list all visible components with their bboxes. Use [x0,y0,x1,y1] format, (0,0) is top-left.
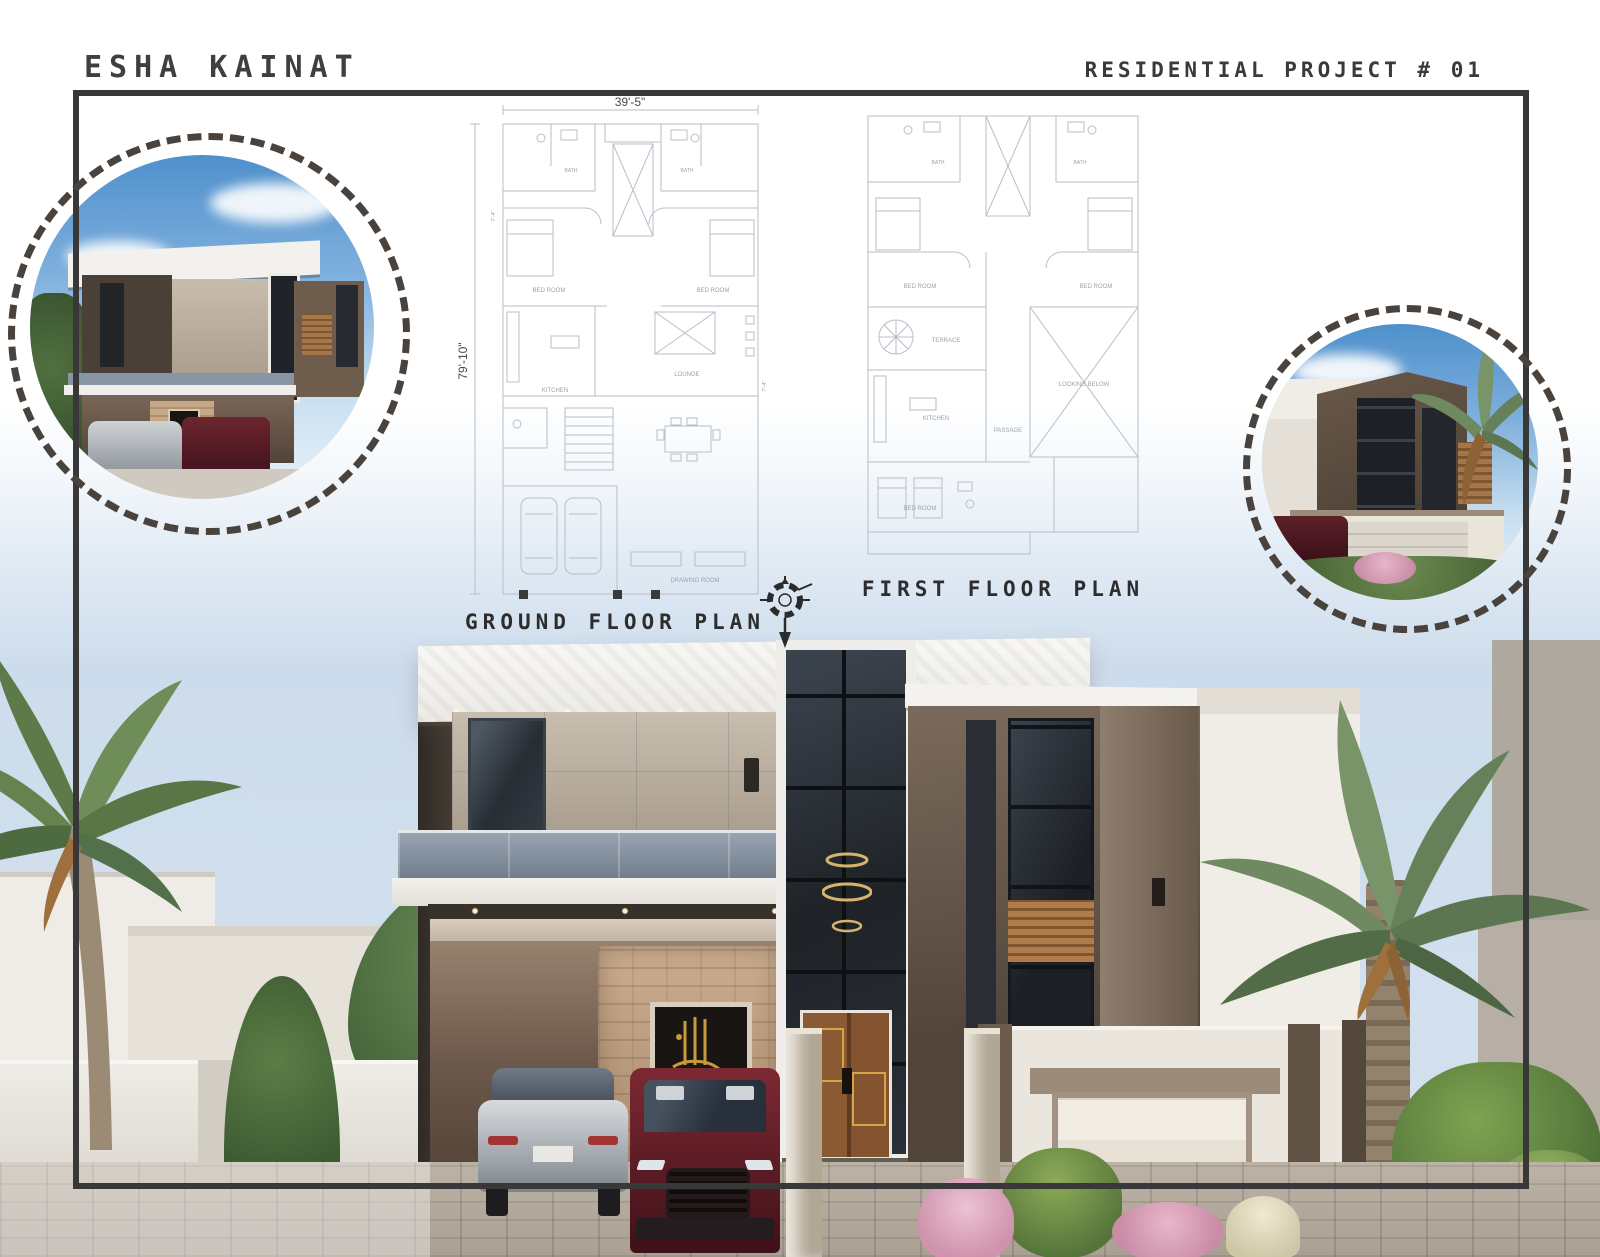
author-title: ESHA KAINAT [84,50,360,85]
dashed-circle-left [8,133,410,535]
dashed-circle-right [1243,305,1571,633]
pink-flower-bush [918,1178,1014,1257]
white-grass-plume [1226,1196,1300,1257]
project-title: RESIDENTIAL PROJECT # 01 [1085,58,1484,82]
presentation-board: 39'-5" 79'-10" 7'-4" 7'-4" BED ROOM BED … [0,0,1600,1257]
sedan-wheel-right [598,1186,620,1216]
sedan-wheel-left [486,1186,508,1216]
suv-bumper [636,1218,774,1240]
pink-flower-bush-2 [1112,1202,1224,1257]
